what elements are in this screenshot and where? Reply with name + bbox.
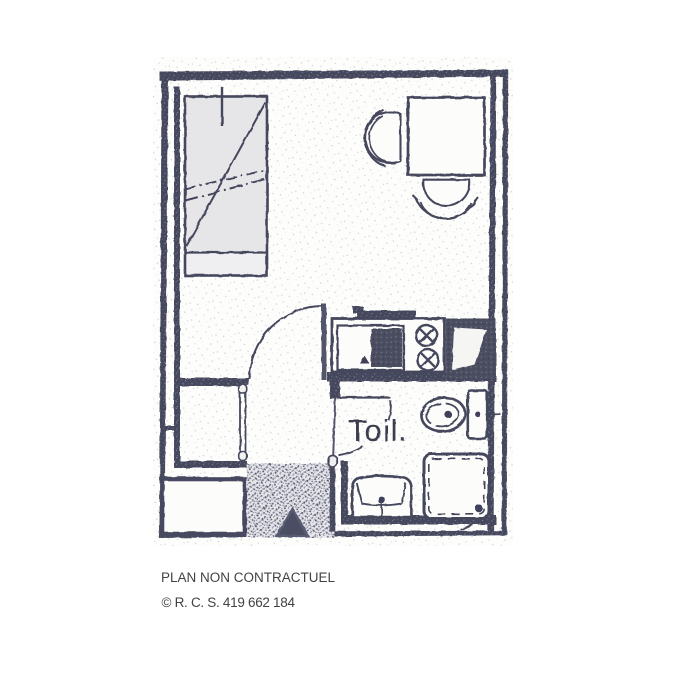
svg-text:Toil.: Toil. (348, 413, 408, 448)
